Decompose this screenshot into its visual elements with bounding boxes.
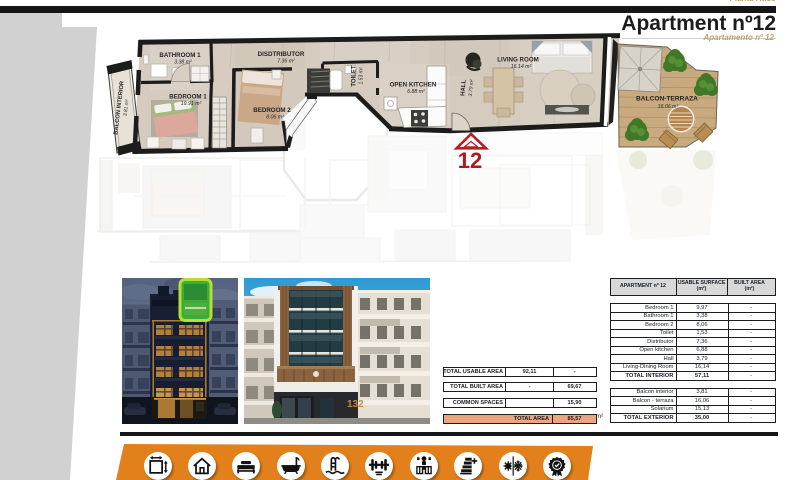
svg-text:LIVING ROOM: LIVING ROOM — [497, 57, 539, 64]
svg-text:19.91 m²: 19.91 m² — [181, 101, 202, 107]
svg-text:3.38 m²: 3.38 m² — [174, 60, 192, 66]
svg-text:16.14 m²: 16.14 m² — [511, 64, 532, 70]
svg-text:BALCON-TERRAZA: BALCON-TERRAZA — [636, 96, 698, 103]
svg-text:1.53 m²: 1.53 m² — [359, 67, 365, 84]
svg-text:8.06 m²: 8.06 m² — [266, 115, 284, 121]
svg-text:12: 12 — [458, 148, 482, 173]
svg-text:BATHROOM 1: BATHROOM 1 — [159, 52, 201, 59]
svg-text:BEDROOM 2: BEDROOM 2 — [253, 107, 291, 114]
svg-text:6.88 m²: 6.88 m² — [407, 89, 425, 95]
svg-text:7.36 m²: 7.36 m² — [277, 59, 295, 65]
svg-text:132: 132 — [347, 399, 364, 410]
svg-text:DISDTRIBUTOR: DISDTRIBUTOR — [258, 51, 305, 58]
svg-text:16.06 m²: 16.06 m² — [658, 104, 679, 110]
svg-text:OPEN KITCHEN: OPEN KITCHEN — [390, 82, 437, 89]
svg-text:BEDROOM 1: BEDROOM 1 — [169, 94, 207, 101]
svg-text:TOILET: TOILET — [352, 65, 358, 87]
